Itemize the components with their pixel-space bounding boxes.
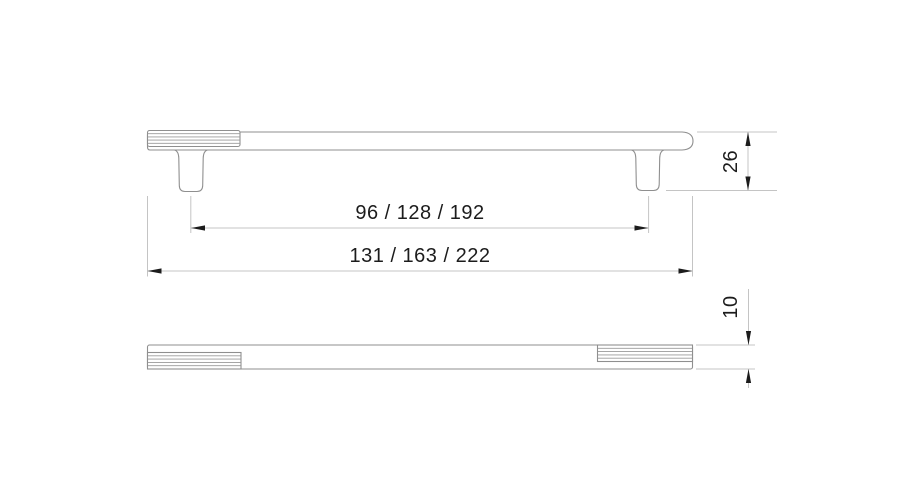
arrowhead-right-icon [679, 268, 693, 273]
front-view [148, 131, 694, 192]
dim-overall-length-label: 131 / 163 / 222 [350, 245, 491, 267]
arrowhead-left-icon [191, 225, 205, 230]
plan-view [148, 345, 693, 369]
left-mounting-leg [175, 150, 208, 192]
dim-bar-thickness: 10 [696, 289, 755, 388]
dimension-drawing: 96 / 128 / 192 131 / 163 / 222 26 [0, 0, 900, 500]
dim-hole-spacing: 96 / 128 / 192 [191, 196, 649, 233]
dim-handle-height-label: 26 [720, 150, 742, 173]
knurl-section-plan-right [598, 345, 693, 362]
arrowhead-right-icon [635, 225, 649, 230]
knurl-section-front-left [148, 131, 241, 147]
arrowhead-down-icon [746, 331, 751, 345]
dim-hole-spacing-label: 96 / 128 / 192 [355, 202, 484, 224]
right-mounting-leg [632, 150, 665, 191]
arrowhead-up-icon [746, 369, 751, 383]
dim-bar-thickness-label: 10 [720, 295, 742, 318]
arrowhead-up-icon [745, 132, 750, 146]
knurl-outline [598, 345, 693, 362]
knurl-section-plan-left [148, 353, 242, 370]
knurl-collar-outline [148, 131, 241, 147]
knurl-outline [148, 353, 242, 370]
arrowhead-left-icon [148, 268, 162, 273]
arrowhead-down-icon [745, 177, 750, 191]
